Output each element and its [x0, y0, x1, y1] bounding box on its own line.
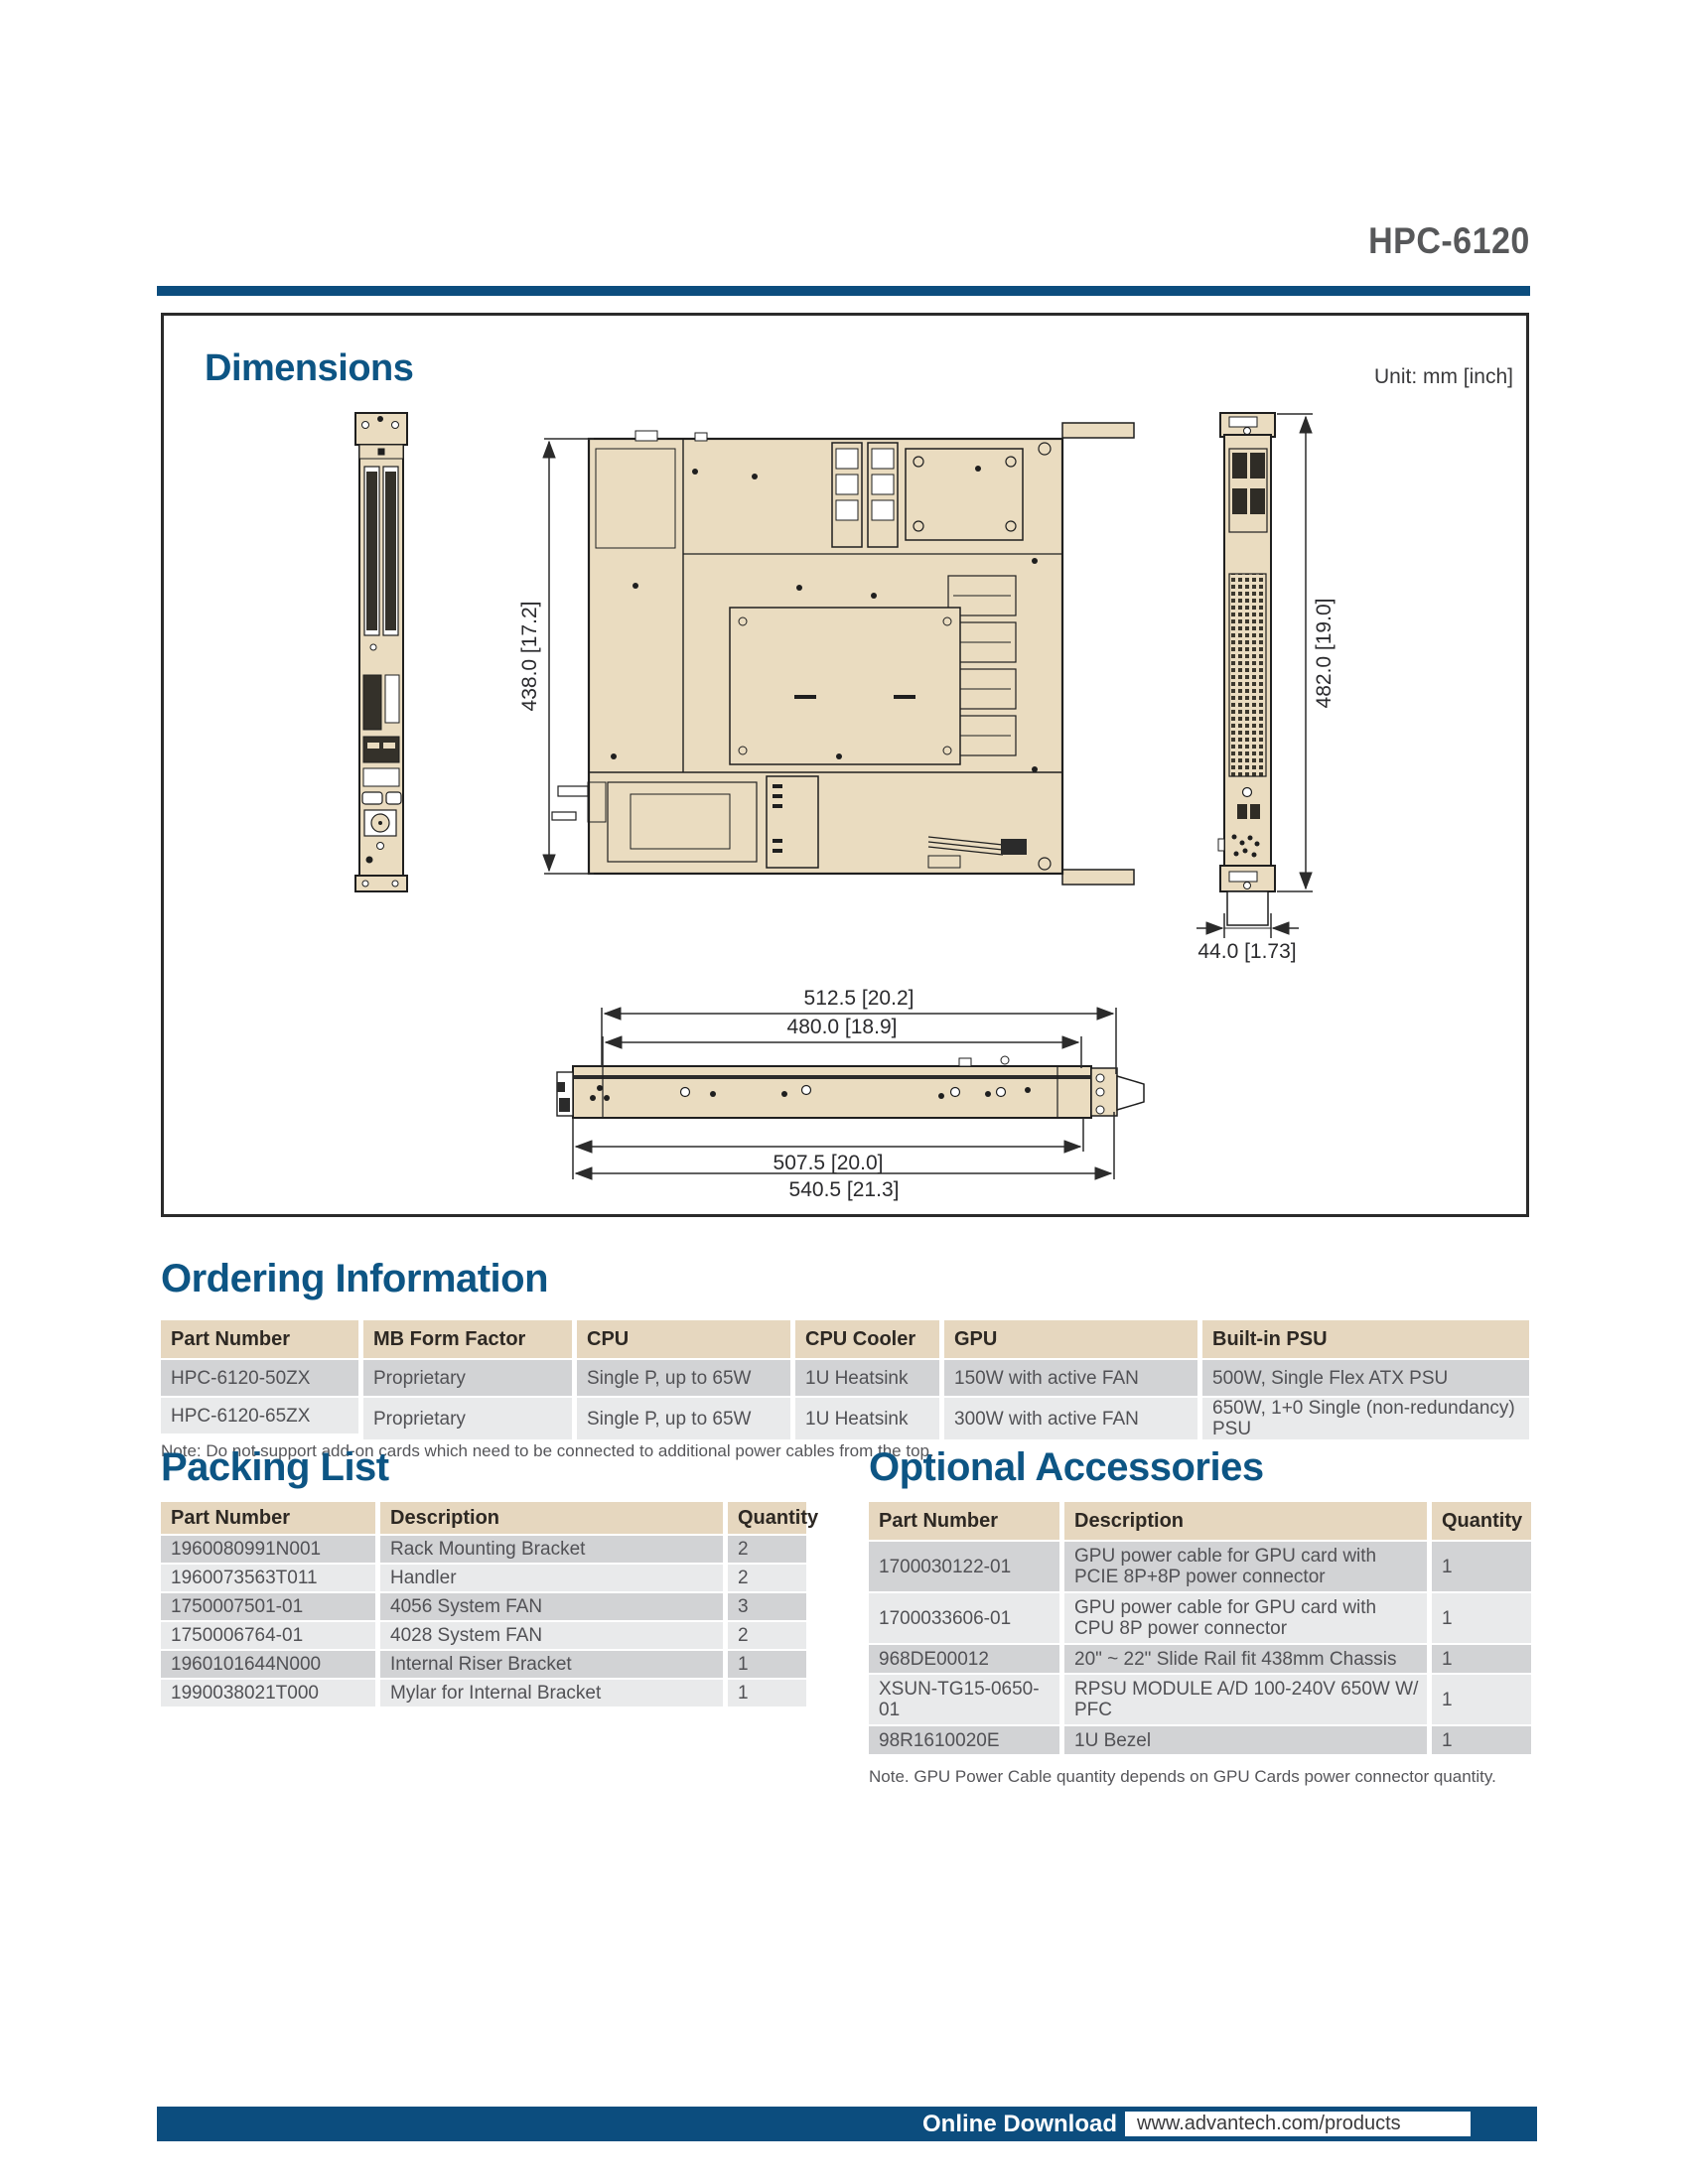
table-cell: 2 — [728, 1536, 806, 1563]
table-cell: 1 — [1432, 1726, 1531, 1754]
table-cell: 650W, 1+0 Single (non-redundancy) PSU — [1202, 1398, 1529, 1439]
footer-url-box[interactable]: www.advantech.com/products — [1125, 2112, 1471, 2136]
table-cell: 150W with active FAN — [944, 1360, 1197, 1396]
svg-text:507.5 [20.0]: 507.5 [20.0] — [774, 1152, 884, 1174]
table-cell: Single P, up to 65W — [577, 1398, 790, 1439]
ordering-table: Part Number MB Form Factor CPU CPU Coole… — [161, 1320, 1529, 1439]
svg-text:512.5 [20.2]: 512.5 [20.2] — [804, 987, 914, 1010]
table-cell: GPU power cable for GPU card with PCIE 8… — [1064, 1542, 1427, 1591]
table-cell: 1 — [728, 1680, 806, 1706]
table-cell: 1 — [1432, 1542, 1531, 1591]
table-cell: 1700033606-01 — [869, 1593, 1059, 1643]
svg-text:44.0 [1.73]: 44.0 [1.73] — [1197, 940, 1296, 963]
ordering-col-header: Part Number — [161, 1320, 358, 1358]
footer-url-text[interactable]: www.advantech.com/products — [1125, 2112, 1471, 2136]
optional-table: Part Number Description Quantity 1700030… — [869, 1502, 1531, 1754]
footer-download-label: Online Download — [922, 2107, 1117, 2141]
optional-title: Optional Accessories — [869, 1445, 1264, 1490]
svg-text:480.0 [18.9]: 480.0 [18.9] — [787, 1016, 898, 1038]
table-cell: Proprietary — [363, 1398, 572, 1439]
dim-front-height: 482.0 [19.0] — [1277, 414, 1336, 891]
table-cell: 968DE00012 — [869, 1645, 1059, 1673]
packing-col-header: Quantity — [728, 1502, 806, 1534]
ordering-col-header: CPU — [577, 1320, 790, 1358]
table-cell: XSUN-TG15-0650-01 — [869, 1675, 1059, 1724]
table-cell: 98R1610020E — [869, 1726, 1059, 1754]
table-cell: 300W with active FAN — [944, 1398, 1197, 1439]
front-vent-perforation — [1229, 574, 1266, 776]
table-cell: 1 — [1432, 1593, 1531, 1643]
table-cell: 1750007501-01 — [161, 1593, 375, 1620]
ordering-col-header: MB Form Factor — [363, 1320, 572, 1358]
table-cell: Handler — [380, 1565, 723, 1591]
table-cell: Proprietary — [363, 1360, 572, 1396]
table-cell: 2 — [728, 1622, 806, 1649]
top-view-drawing — [552, 423, 1134, 885]
svg-text:482.0 [19.0]: 482.0 [19.0] — [1313, 599, 1336, 709]
table-cell: 1U Bezel — [1064, 1726, 1427, 1754]
table-cell: 20" ~ 22" Slide Rail fit 438mm Chassis — [1064, 1645, 1427, 1673]
svg-text:438.0 [17.2]: 438.0 [17.2] — [518, 602, 541, 712]
table-cell: Internal Riser Bracket — [380, 1651, 723, 1678]
packing-col-header: Description — [380, 1502, 723, 1534]
packing-table: Part Number Description Quantity 1960080… — [161, 1502, 806, 1706]
table-cell: Single P, up to 65W — [577, 1360, 790, 1396]
table-cell: 4028 System FAN — [380, 1622, 723, 1649]
optional-note: Note. GPU Power Cable quantity depends o… — [869, 1767, 1496, 1787]
svg-text:540.5 [21.3]: 540.5 [21.3] — [789, 1178, 900, 1201]
dim-depth: 438.0 [17.2] — [518, 439, 594, 874]
table-cell: 1 — [1432, 1645, 1531, 1673]
datasheet-page: HPC-6120 Dimensions Unit: mm [inch] — [0, 0, 1688, 2184]
side-view-drawing — [557, 1056, 1144, 1118]
table-cell: 1990038021T000 — [161, 1680, 375, 1706]
packing-title: Packing List — [161, 1445, 389, 1490]
table-cell: 1U Heatsink — [795, 1360, 939, 1396]
table-cell: HPC-6120-65ZX — [161, 1398, 358, 1433]
dim-inner-width: 480.0 [18.9] — [603, 1016, 1081, 1068]
table-cell: 1U Heatsink — [795, 1398, 939, 1439]
table-cell: 1 — [1432, 1675, 1531, 1724]
front-view-drawing — [1218, 413, 1275, 925]
table-cell: 4056 System FAN — [380, 1593, 723, 1620]
ordering-col-header: Built-in PSU — [1202, 1320, 1529, 1358]
table-cell: 1960073563T011 — [161, 1565, 375, 1591]
table-cell: 1960101644N000 — [161, 1651, 375, 1678]
rear-view-drawing — [355, 413, 407, 891]
table-cell: 1960080991N001 — [161, 1536, 375, 1563]
table-cell: 2 — [728, 1565, 806, 1591]
ordering-col-header: CPU Cooler — [795, 1320, 939, 1358]
table-cell: Rack Mounting Bracket — [380, 1536, 723, 1563]
packing-col-header: Part Number — [161, 1502, 375, 1534]
dim-body-width: 507.5 [20.0] — [573, 1118, 1083, 1179]
table-cell: HPC-6120-50ZX — [161, 1360, 358, 1396]
dimension-drawings: 438.0 [17.2] — [0, 0, 1688, 2184]
table-cell: 500W, Single Flex ATX PSU — [1202, 1360, 1529, 1396]
ordering-title: Ordering Information — [161, 1257, 548, 1301]
optional-col-header: Part Number — [869, 1502, 1059, 1540]
optional-col-header: Description — [1064, 1502, 1427, 1540]
optional-col-header: Quantity — [1432, 1502, 1531, 1540]
table-cell: Mylar for Internal Bracket — [380, 1680, 723, 1706]
table-cell: 1700030122-01 — [869, 1542, 1059, 1591]
table-cell: 1750006764-01 — [161, 1622, 375, 1649]
table-cell: 1 — [728, 1651, 806, 1678]
ordering-col-header: GPU — [944, 1320, 1197, 1358]
table-cell: GPU power cable for GPU card with CPU 8P… — [1064, 1593, 1427, 1643]
table-cell: 3 — [728, 1593, 806, 1620]
table-cell: RPSU MODULE A/D 100-240V 650W W/ PFC — [1064, 1675, 1427, 1724]
